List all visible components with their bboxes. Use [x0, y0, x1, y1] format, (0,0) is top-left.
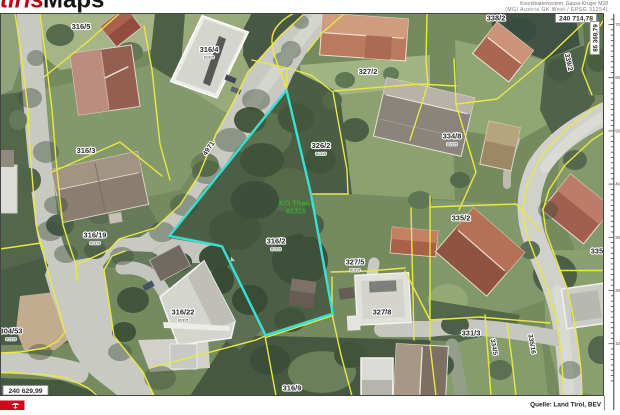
svg-text:40: 40	[615, 182, 620, 187]
svg-text:Quelle: Land Tirol, BEV: Quelle: Land Tirol, BEV	[530, 402, 602, 409]
svg-text:50: 50	[615, 128, 620, 133]
svg-text:tiris: tiris	[0, 0, 44, 14]
svg-text:70: 70	[615, 22, 620, 27]
svg-text:10: 10	[615, 341, 620, 346]
svg-text:30: 30	[615, 235, 620, 240]
svg-text:60: 60	[615, 75, 620, 80]
svg-text:20: 20	[615, 288, 620, 293]
svg-text:(MGI Austria GK West / EPSG 31: (MGI Austria GK West / EPSG 31254)	[505, 7, 608, 13]
svg-text:Maps: Maps	[43, 0, 104, 14]
